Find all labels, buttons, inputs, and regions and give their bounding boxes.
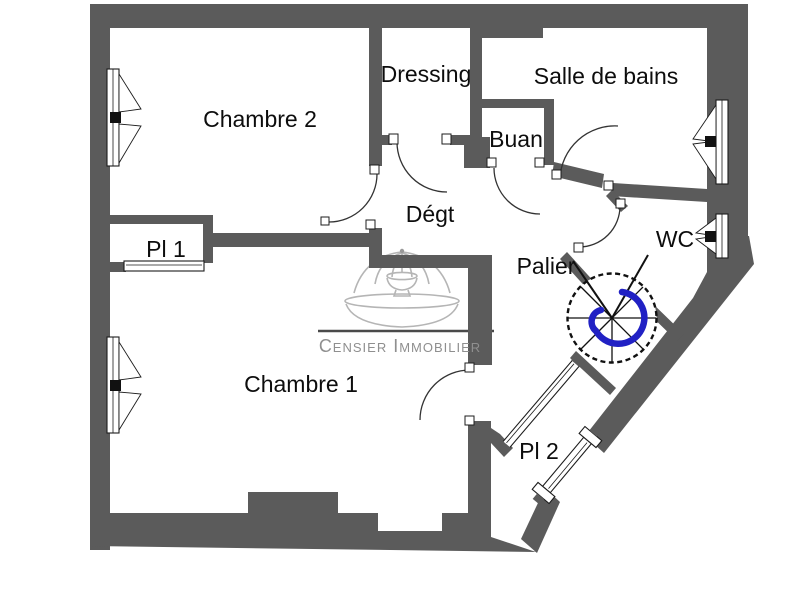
window-chambre1 xyxy=(107,337,141,433)
room-label-placard-1: Pl 1 xyxy=(146,236,186,262)
wall-pl1-right xyxy=(203,215,213,263)
wall-pl1-top xyxy=(106,215,213,224)
room-label-chambre-1: Chambre 1 xyxy=(244,371,358,397)
sliding-door-pl1 xyxy=(124,261,204,271)
room-label-dressing: Dressing xyxy=(381,61,472,87)
wall-chambre2-chambre1 xyxy=(203,233,373,247)
door-arc-chambre2 xyxy=(329,174,377,222)
window-wc xyxy=(696,214,728,258)
room-label-salle-de-bains: Salle de bains xyxy=(534,63,679,89)
wall-top xyxy=(90,4,742,28)
room-label-wc: WC xyxy=(656,226,694,252)
room-label-chambre-2: Chambre 2 xyxy=(203,106,317,132)
room-label-placard-2: Pl 2 xyxy=(519,438,559,464)
door-arc-buan xyxy=(494,168,540,214)
door-arc-dressing xyxy=(397,142,447,192)
watermark-text: Censier Immobilier xyxy=(319,336,481,356)
wall-top-thick xyxy=(478,26,543,38)
door-arc-wc xyxy=(579,206,620,247)
room-label-palier: Palier xyxy=(517,253,576,279)
wall-buan-top xyxy=(482,99,553,108)
room-label-degagement: Dégt xyxy=(406,201,455,227)
entry-door-fixture xyxy=(528,421,607,509)
wall-dressing-buan xyxy=(470,24,482,145)
wall-chambre1-top xyxy=(369,255,470,268)
room-label-buanderie: Buan xyxy=(489,126,543,152)
floor-plan: Censier Immobilier Chambre 2 Dressing Sa… xyxy=(0,0,800,600)
wall-buan-right xyxy=(544,99,554,165)
wall-chambre2-dressing xyxy=(369,26,382,166)
window-salle-de-bains xyxy=(693,100,728,184)
window-chambre2 xyxy=(107,69,141,166)
door-arc-chambre1 xyxy=(420,370,470,420)
spiral-staircase xyxy=(568,255,657,363)
